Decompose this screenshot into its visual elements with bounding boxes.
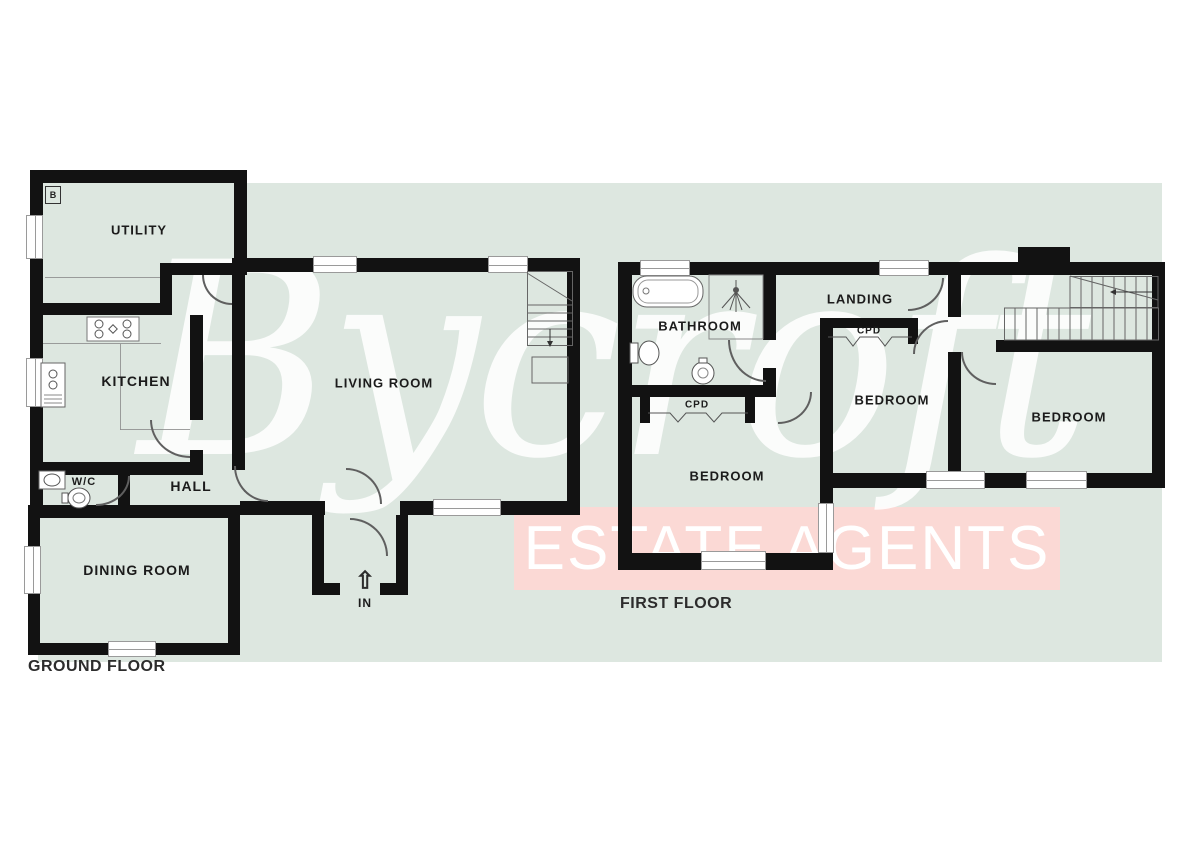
- wall: [948, 262, 961, 317]
- wall: [312, 583, 340, 595]
- wall: [948, 352, 961, 475]
- room-label: BEDROOM: [690, 469, 765, 484]
- first-floor-stairs-icon: [1004, 276, 1162, 342]
- cpd-rail-icon: [648, 410, 748, 426]
- room-label: W/C: [72, 476, 96, 488]
- window-glyph: [818, 503, 834, 553]
- wall: [618, 262, 632, 570]
- window-glyph: [313, 256, 357, 273]
- room-label: CPD: [685, 400, 709, 411]
- window-glyph: [640, 260, 690, 276]
- wall: [618, 385, 776, 397]
- wall: [232, 258, 245, 470]
- wall: [234, 170, 247, 265]
- ground-stairs-icon: [527, 271, 573, 387]
- room-label: LANDING: [827, 292, 893, 307]
- window-glyph: [488, 256, 528, 273]
- window-glyph: [926, 471, 985, 489]
- wall: [1018, 247, 1070, 263]
- bathtub-icon: [632, 275, 704, 308]
- room-label: DINING ROOM: [83, 562, 190, 578]
- window-glyph: [701, 551, 766, 570]
- wall: [929, 262, 1162, 275]
- floorplan-page: ESTATE AGENTS Bycroft UTILITYKITCHENW/CH…: [0, 0, 1200, 848]
- room-label: IN: [358, 596, 372, 610]
- wall: [30, 170, 247, 183]
- wall: [380, 583, 408, 595]
- room-label: BATHROOM: [658, 319, 742, 334]
- estate-agents-watermark: ESTATE AGENTS: [524, 513, 1051, 584]
- boiler-box: B: [45, 186, 61, 204]
- wall: [228, 505, 240, 655]
- wall: [240, 501, 325, 515]
- room-label: LIVING ROOM: [335, 376, 433, 391]
- first-floor-title: FIRST FLOOR: [620, 595, 732, 613]
- entrance-arrow-icon: ⇧: [355, 567, 375, 596]
- window-glyph: [879, 260, 929, 276]
- wall: [763, 275, 776, 340]
- wc-toilet-icon: [62, 485, 94, 511]
- kitchen-sink-icon: [40, 362, 66, 408]
- wall: [30, 303, 172, 315]
- wall: [820, 473, 1162, 488]
- counter-line: [45, 277, 160, 278]
- wall: [28, 505, 240, 518]
- wall: [190, 450, 203, 475]
- room-label: HALL: [170, 478, 211, 494]
- room-label: KITCHEN: [101, 373, 170, 389]
- room-label: UTILITY: [111, 223, 167, 238]
- counter-line: [43, 343, 161, 344]
- ground-floor-title: GROUND FLOOR: [28, 658, 166, 676]
- room-label: CPD: [857, 326, 881, 337]
- wall: [190, 315, 203, 420]
- window-glyph: [108, 641, 156, 657]
- window-glyph: [26, 215, 43, 259]
- window-glyph: [24, 546, 41, 594]
- room-label: BEDROOM: [855, 393, 930, 408]
- watermark-band: ESTATE AGENTS: [514, 507, 1060, 590]
- bathroom-sink-icon: [688, 358, 718, 386]
- room-label: BEDROOM: [1032, 410, 1107, 425]
- bathroom-toilet-icon: [628, 338, 662, 368]
- window-glyph: [1026, 471, 1087, 489]
- stove-icon: [86, 316, 140, 342]
- window-glyph: [433, 499, 501, 516]
